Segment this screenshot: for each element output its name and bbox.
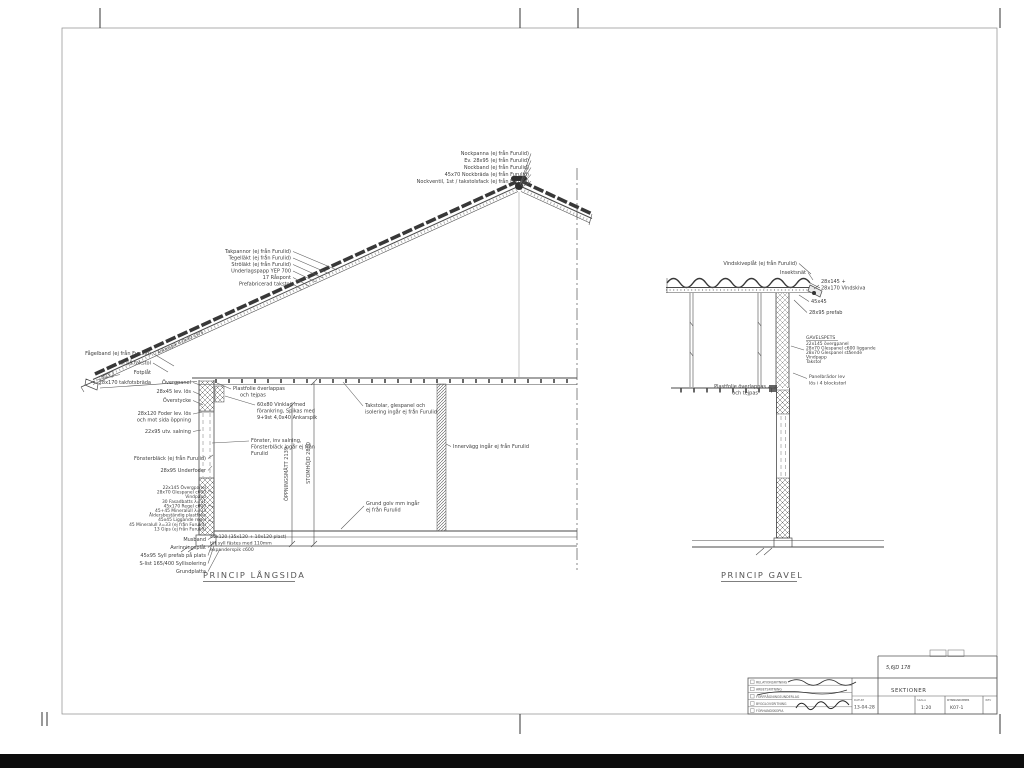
annotation-label: Takstol xyxy=(805,359,821,365)
number-value: K07-1 xyxy=(950,705,964,711)
annotation-label: Fönsterbläck (ej från Furulid) xyxy=(134,455,206,462)
annotation-label: Insektsnät xyxy=(780,270,806,276)
annotation-label: Nockventil, 1st / takstolsfack (ej från … xyxy=(417,178,529,185)
plastfolie-detail xyxy=(769,385,777,392)
annotation-label: Tegelläkt (ej från Furulid) xyxy=(228,255,291,262)
inner-wall-note: Innervägg ingår ej från Furulid xyxy=(446,443,529,450)
annotation-label: Avrinningsplåt xyxy=(170,544,206,551)
rev-label: REV xyxy=(986,698,992,702)
annotation-label: Övergpanel xyxy=(162,379,191,386)
annotation-label: Kil på takstol xyxy=(119,360,151,367)
annotation-label: tät syll fästes med 110mm xyxy=(210,541,272,547)
annotation-label: isolering ingår ej från Furulid xyxy=(365,409,437,416)
titleblock-row: ARBETSRITNING xyxy=(756,688,782,692)
annotation-label: 13 Gips (ej från Furulid) xyxy=(154,525,206,532)
scale-label: SKALA xyxy=(917,698,926,702)
titleblock-row: FÖRHANDSKOPIA xyxy=(756,708,784,713)
scan-edge-bar xyxy=(0,754,1024,768)
sheet-frame xyxy=(42,8,1000,734)
annotation-label: Plastfolie överlappas xyxy=(714,384,766,390)
annotation-label: 45x120 (35x120 + 10x120 plast) xyxy=(210,534,287,540)
annotation-label: 45x45 xyxy=(811,299,827,305)
annotation-label: Furulid xyxy=(251,451,268,457)
gavelspets-wall xyxy=(776,293,789,388)
langsida-title: PRINCIP LÅNGSIDA xyxy=(203,569,305,580)
drawing-title: SEKTIONER xyxy=(891,688,927,694)
annotation-label: Innervägg ingår ej från Furulid xyxy=(453,443,529,450)
annotation-label: Plastfolie överlappas xyxy=(233,386,285,392)
annotation-label: 28x45 lev. lös xyxy=(156,389,191,395)
annotation-label: 28x95 prefab xyxy=(809,310,842,316)
titleblock-row: FÖRFRÅGNINGSUNDERLAG xyxy=(756,694,800,699)
annotation-label: Takstolar, glespanel och xyxy=(364,403,425,409)
annotation-label: 28x120 Foder lev. lös xyxy=(138,411,192,417)
annotation-label: 45x95 Syll prefab på plats xyxy=(140,552,206,559)
annotation-label: Fotplåt xyxy=(134,369,151,376)
annotation-label: lös i 4 blockstorl xyxy=(809,381,846,387)
annotation-label: Takpannor (ej från Furulid) xyxy=(224,248,291,255)
annotation-label: 45x70 Nockbräda (ej från Furulid) xyxy=(445,171,529,178)
annotation-label: och mot sida öppning xyxy=(137,418,191,424)
annotation-label: ej från Furulid xyxy=(366,507,401,514)
scanned-drawing-page: Nockpanna (ej från Furulid) Ev. 28x95 (e… xyxy=(0,0,1024,768)
annotation-label: och tejpas xyxy=(732,391,758,397)
annotation-label: Grundplatta xyxy=(176,569,206,575)
annotation-label: Underlagspapp YEP 700 xyxy=(231,269,291,275)
annotation-label: expanderspik c600 xyxy=(210,547,254,553)
date-value: 13-04-28 xyxy=(854,705,875,711)
annotation-label: 22x95 utv. salning xyxy=(145,429,191,435)
scale-value: 1:20 xyxy=(921,705,931,711)
annotation-label: förankring, Spikas med xyxy=(257,409,315,415)
annotation-label: 28x170 Vindskiva xyxy=(821,286,865,292)
annotation-label: Nockband (ej från Furulid) xyxy=(464,164,529,171)
dim-frame-height-text: STOMHÖJD 2800 xyxy=(305,442,312,484)
annotation-label: Prefabricerad takstol xyxy=(239,282,291,288)
annotation-label: Nockpanna (ej från Furulid) xyxy=(461,150,529,157)
annotation-label: Panelbrädor lev xyxy=(809,374,845,380)
dim-opening-text: ÖPPNINGSMÅTT 2139 xyxy=(283,447,290,501)
number-label: RITNINGSNUMMER xyxy=(947,699,970,702)
annotation-label: 9+9st 4,0x40 Ankarspik xyxy=(257,415,317,421)
annotation-label: S-list 165/400 Syllisolering xyxy=(140,561,207,567)
annotation-label: 17 Råspont xyxy=(263,274,291,281)
annotation-label: Ströläkt (ej från Furulid) xyxy=(231,261,291,268)
inner-wall-section xyxy=(437,384,446,531)
annotation-label: och tejpas xyxy=(240,393,266,399)
annotation-label: 60x80 Vinklad med xyxy=(257,402,305,408)
annotation-label: Fönster, inv salning, xyxy=(251,438,302,444)
titleblock-row: RELATIONSRITNING xyxy=(756,680,788,684)
titleblock-row: BYGGLOVSRITNING xyxy=(756,702,787,706)
annotation-label: Ev. 28x95 (ej från Furulid) xyxy=(464,157,529,164)
annotation-label: Överstycke xyxy=(163,397,191,404)
annotation-label: 28x170 takfotsbräda xyxy=(99,380,151,386)
handwritten-note: 5,6JD 178 xyxy=(886,665,910,671)
date-label: DATUM xyxy=(854,698,865,702)
blueprint-canvas: Nockpanna (ej från Furulid) Ev. 28x95 (e… xyxy=(0,0,1024,768)
annotation-label: Vindskiveplåt (ej från Furulid) xyxy=(723,260,797,267)
annotation-label: 28x145 + xyxy=(821,279,846,285)
annotation-label: Grund golv mm ingår xyxy=(366,500,420,507)
gavel-title: PRINCIP GAVEL xyxy=(721,570,803,580)
annotation-label: Musband xyxy=(183,537,206,543)
annotation-label: 28x95 Underfoder xyxy=(160,468,206,474)
annotation-label: Fågelband (ej från Furulid) xyxy=(85,350,151,357)
